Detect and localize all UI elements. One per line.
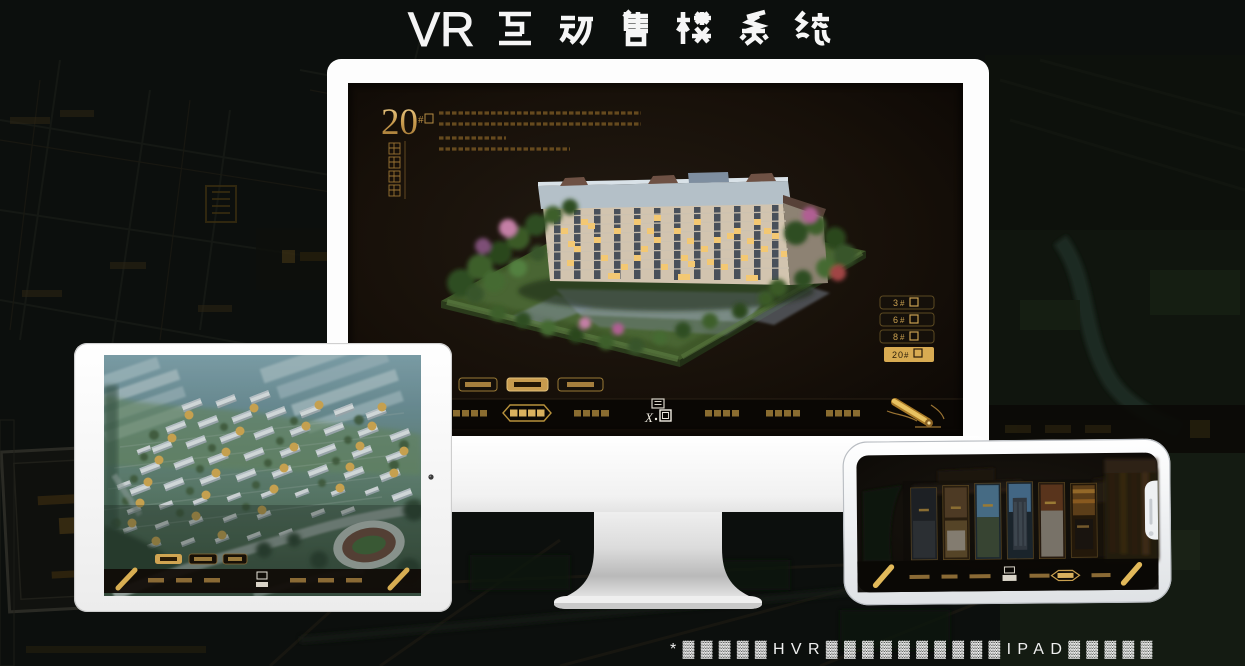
svg-text:#: #: [900, 316, 905, 325]
svg-text:X: X: [644, 410, 654, 425]
svg-text:#: #: [904, 351, 909, 360]
svg-text:3: 3: [893, 298, 899, 308]
svg-text:6: 6: [893, 315, 899, 325]
svg-text:#: #: [418, 114, 424, 126]
svg-text:#: #: [900, 299, 905, 308]
svg-text:#: #: [900, 333, 905, 342]
svg-text:20: 20: [381, 102, 418, 143]
svg-text:20: 20: [892, 350, 904, 360]
svg-text:8: 8: [893, 332, 899, 342]
